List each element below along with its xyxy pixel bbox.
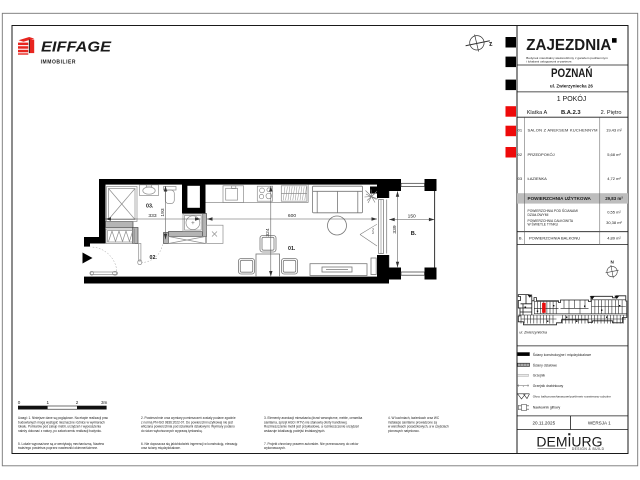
svg-text:POWIERZCHNIA BALKONU: POWIERZCHNIA BALKONU bbox=[529, 236, 580, 241]
svg-text:W ŚWIETLE TYNKU: W ŚWIETLE TYNKU bbox=[528, 222, 559, 227]
svg-text:Ściany działowe: Ściany działowe bbox=[533, 362, 557, 367]
svg-text:193: 193 bbox=[160, 208, 166, 216]
svg-text:POWIERZCHNIA UŻYTKOWA: POWIERZCHNIA UŻYTKOWA bbox=[528, 195, 592, 201]
svg-text:1: 1 bbox=[47, 400, 50, 405]
svg-text:należy dokonać z natury, po za: należy dokonać z natury, po zakończeniu … bbox=[18, 429, 102, 433]
svg-text:0: 0 bbox=[18, 400, 21, 405]
svg-text:wskazuje lokalizację podejść i: wskazuje lokalizację podejść instalacyjn… bbox=[264, 429, 325, 433]
svg-text:4,89 m²: 4,89 m² bbox=[607, 236, 621, 241]
svg-text:Grzejnik: Grzejnik bbox=[533, 374, 546, 378]
svg-text:PRZEDPOKÓJ: PRZEDPOKÓJ bbox=[528, 152, 555, 157]
svg-text:Nawiewnik glifowy: Nawiewnik glifowy bbox=[533, 406, 561, 410]
svg-text:WERSJA 1: WERSJA 1 bbox=[588, 421, 611, 426]
svg-text:0,55 m²: 0,55 m² bbox=[607, 210, 621, 215]
svg-text:6.P ø: 6.P ø bbox=[372, 228, 375, 234]
svg-text:do ścian wykończonych wyprawą: do ścian wykończonych wyprawą tynkarską. bbox=[141, 429, 203, 433]
svg-text:Klatka A: Klatka A bbox=[527, 110, 548, 116]
svg-text:02: 02 bbox=[518, 152, 523, 157]
svg-text:01: 01 bbox=[518, 128, 523, 133]
svg-text:B.A.2.3: B.A.2.3 bbox=[561, 110, 581, 116]
svg-text:POZNAŃ: POZNAŃ bbox=[551, 65, 593, 80]
svg-text:B.: B. bbox=[519, 236, 523, 241]
svg-text:świeżego powietrza poprzez naw: świeżego powietrza poprzez nawiewniki ok… bbox=[18, 446, 98, 450]
svg-text:DZIAŁOWYMI: DZIAŁOWYMI bbox=[528, 213, 549, 217]
svg-text:2: 2 bbox=[76, 400, 79, 405]
svg-text:339: 339 bbox=[392, 225, 398, 233]
svg-text:02.: 02. bbox=[150, 255, 158, 261]
svg-text:324: 324 bbox=[265, 228, 271, 236]
svg-text:19,43 m²: 19,43 m² bbox=[606, 128, 622, 133]
svg-text:30,38 m²: 30,38 m² bbox=[606, 220, 622, 225]
svg-text:oraz ściany międzylokalowe.: oraz ściany międzylokalowe. bbox=[141, 446, 181, 450]
svg-text:2. Piętro: 2. Piętro bbox=[601, 110, 622, 116]
svg-text:333: 333 bbox=[148, 213, 156, 219]
svg-text:IMMOBILIER: IMMOBILIER bbox=[41, 59, 77, 65]
svg-text:DESIGN & BUILD: DESIGN & BUILD bbox=[572, 447, 605, 451]
svg-text:i lokalami usługowymi w parter: i lokalami usługowymi w parterze. bbox=[526, 59, 572, 63]
svg-text:pionowych natynkowo.: pionowych natynkowo. bbox=[388, 429, 420, 433]
svg-text:Grzejnik drabinkowy: Grzejnik drabinkowy bbox=[533, 384, 564, 388]
svg-text:03.: 03. bbox=[146, 204, 154, 210]
svg-text:Ściany konstrukcyjne i międzyl: Ściany konstrukcyjne i międzylokalowe bbox=[533, 352, 592, 357]
svg-text:Okno balkonowe/tarasowe/portfe: Okno balkonowe/tarasowe/portfenetr rozwi… bbox=[533, 394, 612, 398]
svg-text:ul. Zwierzyniecka: ul. Zwierzyniecka bbox=[519, 331, 547, 335]
svg-text:SALON Z ANEKSEM KUCHENNYM: SALON Z ANEKSEM KUCHENNYM bbox=[528, 128, 598, 133]
svg-text:4,72 m²: 4,72 m² bbox=[607, 176, 621, 181]
svg-text:150: 150 bbox=[408, 214, 416, 220]
svg-text:B.: B. bbox=[411, 231, 417, 237]
svg-text:EIFFAGE: EIFFAGE bbox=[41, 39, 112, 55]
svg-text:ZAJEZDNIA: ZAJEZDNIA bbox=[526, 37, 611, 54]
svg-text:3m: 3m bbox=[101, 400, 108, 405]
svg-text:29,83 m²: 29,83 m² bbox=[605, 196, 623, 201]
svg-text:1 POKÓJ: 1 POKÓJ bbox=[557, 94, 587, 103]
svg-text:01.: 01. bbox=[288, 246, 296, 252]
svg-text:600: 600 bbox=[288, 213, 296, 219]
svg-text:wykonawczych.: wykonawczych. bbox=[264, 446, 286, 450]
svg-text:5,68 m²: 5,68 m² bbox=[607, 152, 621, 157]
svg-text:20.11.2025: 20.11.2025 bbox=[532, 421, 555, 426]
svg-text:ŁAZIENKA: ŁAZIENKA bbox=[528, 176, 548, 181]
svg-text:ul. Zwierzyniecka 26: ul. Zwierzyniecka 26 bbox=[550, 83, 593, 88]
svg-text:03: 03 bbox=[518, 176, 523, 181]
